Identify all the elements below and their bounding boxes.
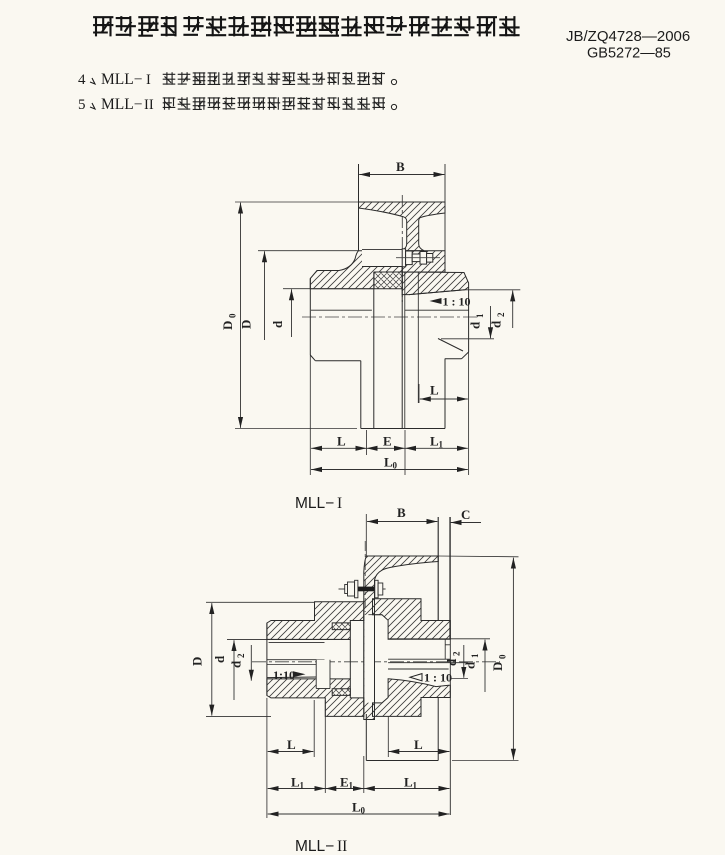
svg-text:4: 4 [78,72,86,88]
svg-text:0: 0 [393,461,398,471]
svg-text:1 : 10: 1 : 10 [424,671,452,685]
svg-text:d: d [270,320,285,328]
svg-text:JB/ZQ4728—2006: JB/ZQ4728—2006 [566,28,690,45]
svg-text:B: B [397,505,406,520]
svg-text:MLL−: MLL− [295,838,334,855]
svg-text:II: II [144,97,154,113]
svg-text:2: 2 [452,651,462,656]
svg-text:d: d [229,660,244,668]
svg-text:E: E [340,775,349,790]
svg-text:2: 2 [236,653,246,658]
svg-text:1 : 10: 1 : 10 [443,295,471,309]
svg-text:d: d [212,655,227,663]
svg-text:D: D [190,657,205,666]
svg-text:2: 2 [496,312,506,317]
svg-text:1: 1 [300,781,305,791]
svg-text:d: d [463,661,478,669]
svg-text:1: 1 [413,781,418,791]
svg-text:B: B [396,159,405,174]
svg-text:L: L [414,737,423,752]
svg-text:0: 0 [498,654,508,659]
svg-text:GB5272—85: GB5272—85 [587,46,671,62]
svg-text:MLL−: MLL− [295,495,334,512]
svg-text:MLL−: MLL− [101,71,142,88]
svg-text:d: d [444,658,459,666]
svg-text:1: 1 [475,313,485,318]
svg-text:D: D [220,321,235,330]
svg-text:d: d [489,320,504,328]
svg-text:5: 5 [78,97,86,113]
svg-text:D: D [490,662,505,671]
svg-text:0: 0 [228,313,238,318]
svg-text:II: II [337,838,347,855]
svg-text:C: C [461,507,470,522]
svg-text:I: I [337,495,342,512]
svg-text:L: L [337,434,346,449]
svg-text:L: L [287,737,296,752]
svg-text:1:10: 1:10 [273,668,295,682]
svg-text:0: 0 [361,806,366,816]
svg-text:d: d [468,321,483,329]
svg-text:I: I [146,72,151,88]
svg-text:E: E [383,434,392,449]
svg-text:L: L [430,383,439,398]
svg-text:D: D [239,320,254,329]
svg-text:MLL−: MLL− [101,96,142,113]
svg-text:1: 1 [349,781,354,791]
svg-text:1: 1 [470,653,480,658]
svg-text:1: 1 [439,440,444,450]
